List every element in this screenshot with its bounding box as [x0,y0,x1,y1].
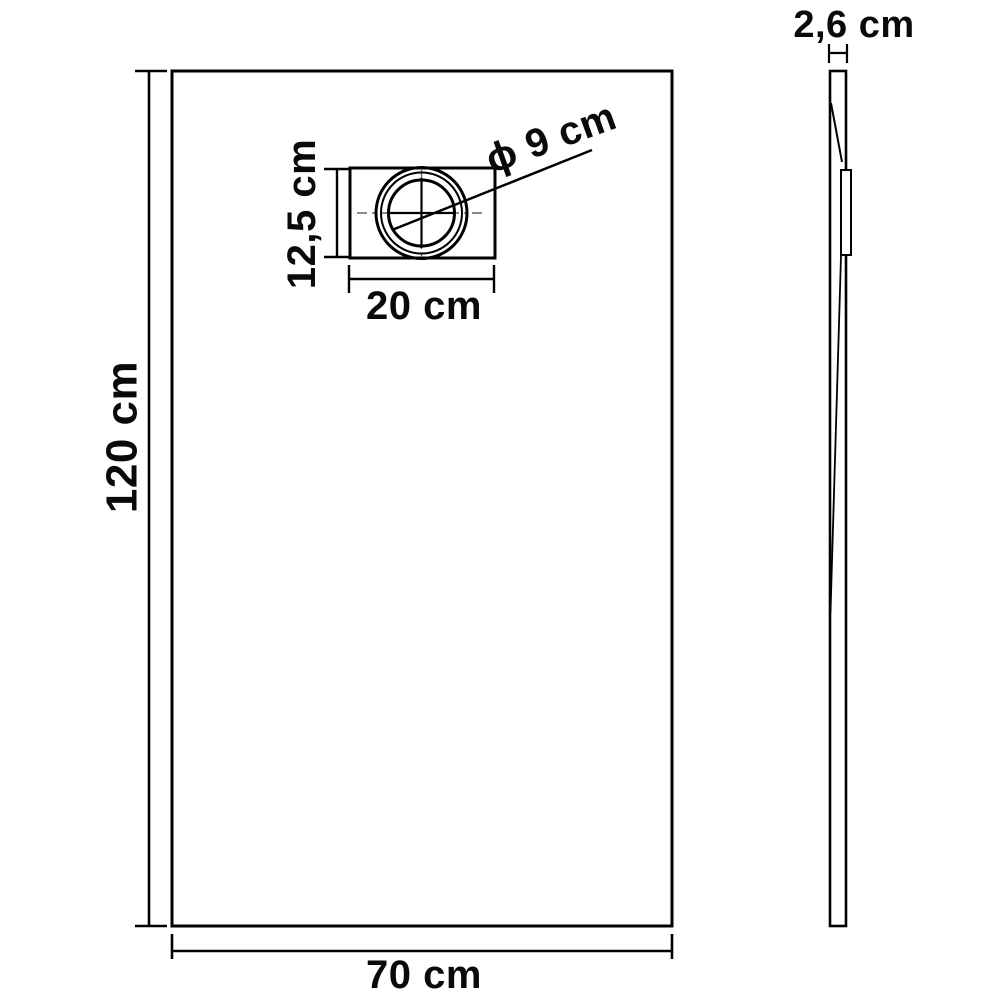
thickness-dimension-line [829,44,847,63]
side-profile-drain-boss [841,170,851,255]
width-dimension-label: 70 cm [366,953,482,997]
technical-drawing-page: 120 cm 70 cm ϕ 9 cm 12,5 cm [0,0,1000,1000]
side-view: 2,6 cm [793,4,914,926]
thickness-dimension-label: 2,6 cm [793,4,914,46]
drain-width-dimension-label: 20 cm [366,284,482,328]
height-dimension-label: 120 cm [98,361,147,513]
shower-tray-dimension-drawing: 120 cm 70 cm ϕ 9 cm 12,5 cm [0,0,1000,1000]
drain-height-dimension-label: 12,5 cm [280,139,324,289]
